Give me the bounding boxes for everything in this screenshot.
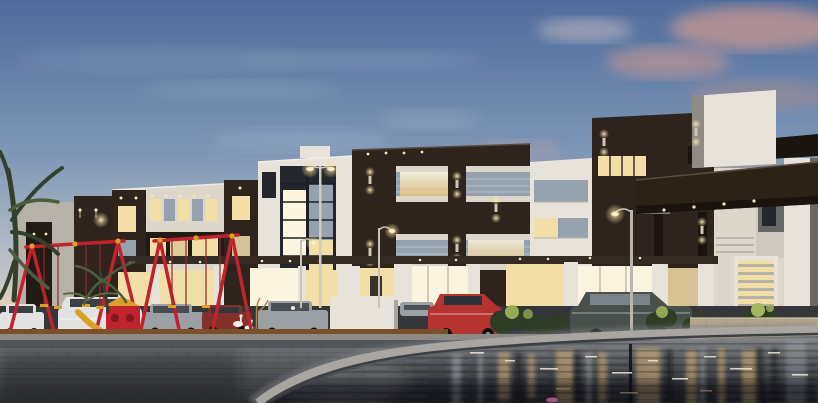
lamp-glow-in-palms bbox=[93, 212, 109, 228]
balcony-band-upper bbox=[396, 160, 530, 206]
pink-smudge bbox=[546, 398, 558, 403]
dusk-residential-rendering bbox=[0, 0, 818, 403]
foreground-ground bbox=[0, 318, 818, 403]
rendering-canvas bbox=[0, 0, 818, 403]
cantilevered-white-box bbox=[692, 90, 776, 168]
upper-windows bbox=[150, 199, 217, 221]
lit-slot-window bbox=[598, 156, 646, 176]
